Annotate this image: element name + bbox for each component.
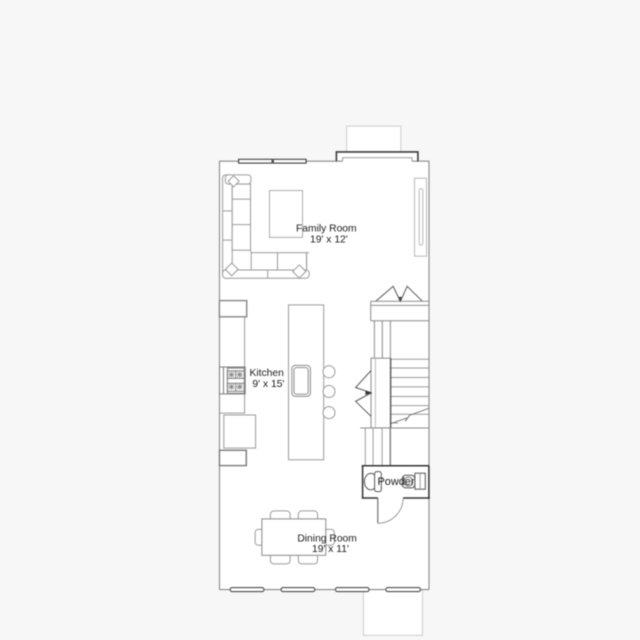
svg-text:9' x 15': 9' x 15' [252, 379, 284, 390]
svg-text:Dining Room: Dining Room [297, 533, 357, 544]
svg-text:Powder: Powder [378, 476, 415, 488]
svg-text:Family Room: Family Room [296, 224, 357, 235]
svg-text:Kitchen: Kitchen [250, 368, 285, 379]
svg-text:19' x 11': 19' x 11' [312, 544, 349, 555]
svg-text:19' x 12': 19' x 12' [310, 234, 348, 245]
